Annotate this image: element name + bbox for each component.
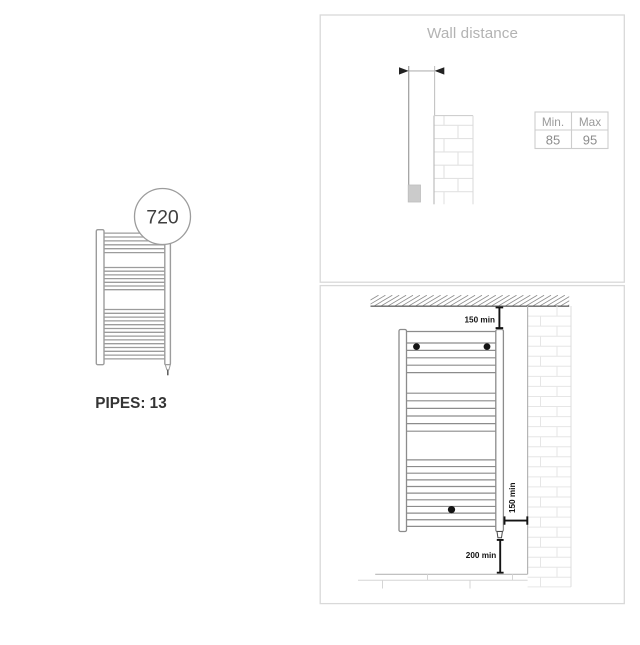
svg-text:85: 85 bbox=[546, 133, 560, 148]
svg-text:200 min: 200 min bbox=[466, 551, 497, 560]
svg-text:Min.: Min. bbox=[542, 115, 564, 129]
svg-text:720: 720 bbox=[146, 207, 179, 229]
svg-text:PIPES: 13: PIPES: 13 bbox=[95, 395, 166, 412]
svg-text:Wall distance: Wall distance bbox=[427, 25, 518, 42]
svg-text:Max: Max bbox=[579, 115, 601, 129]
svg-text:150 min: 150 min bbox=[465, 316, 496, 325]
svg-text:150 min: 150 min bbox=[508, 483, 517, 514]
svg-text:95: 95 bbox=[583, 133, 597, 148]
